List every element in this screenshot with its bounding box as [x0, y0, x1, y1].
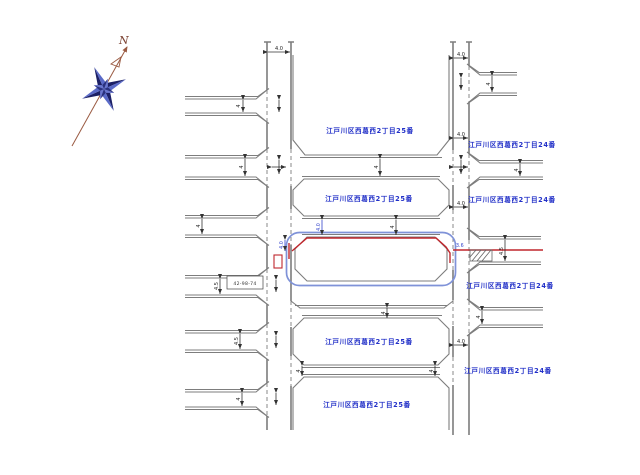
- dimension-label: 4.5: [499, 247, 505, 255]
- crosswalk-hatch-box: [470, 250, 492, 261]
- crossing-symbol: [454, 160, 468, 174]
- block-label-24-4: 江戸川区西葛西2丁目24番: [464, 366, 552, 375]
- dimension-label-blue: 4.0: [316, 223, 322, 231]
- block-label-25-1: 江戸川区西葛西2丁目25番: [326, 126, 414, 135]
- dimension-label: 4.5: [234, 337, 240, 345]
- dimension-label: 4: [381, 311, 387, 314]
- north-needle-line: [72, 47, 127, 146]
- parcel-blue-outline: [287, 233, 456, 286]
- street-annotation-text: 42-98-74: [233, 281, 256, 287]
- dimension-label: 4.0: [275, 46, 283, 52]
- dimension-label: 4: [236, 397, 242, 400]
- block-outline-c1: [293, 55, 449, 155]
- dimension-label: 4: [236, 104, 242, 107]
- compass-star-points: [72, 57, 135, 120]
- block-label-25-2: 江戸川区西葛西2丁目25番: [325, 194, 413, 203]
- dimension-label-blue: 3.6: [456, 243, 464, 249]
- dimension-label: 4: [296, 369, 302, 372]
- north-arrow: N: [72, 34, 136, 146]
- dimension-label: 4.0: [457, 339, 465, 345]
- dimension-label: 4: [514, 168, 520, 171]
- compass-star: [72, 57, 135, 120]
- dimension-label-blue: 4.0: [279, 241, 285, 249]
- map-drawing: N: [0, 0, 640, 475]
- north-arrow-fletch: [111, 57, 121, 67]
- dimension-label: 4.0: [457, 52, 465, 58]
- dimension-label: 4: [239, 165, 245, 168]
- street-annotation-box: 42-98-74: [227, 276, 263, 289]
- dimension-label: 4: [476, 315, 482, 318]
- highlighted-parcel: [274, 233, 543, 286]
- block-labels: 江戸川区西葛西2丁目25番 江戸川区西葛西2丁目25番 江戸川区西葛西2丁目25…: [323, 126, 556, 409]
- parcel-red-marker: [274, 255, 282, 268]
- cad-map-canvas: N: [0, 0, 640, 475]
- dimension-label: 4: [196, 224, 202, 227]
- block-label-25-4: 江戸川区西葛西2丁目25番: [323, 400, 411, 409]
- dimension-label: 4.0: [457, 201, 465, 207]
- dimension-label: 4: [486, 82, 492, 85]
- dimension-label: 4.0: [457, 132, 465, 138]
- block-label-25-3: 江戸川区西葛西2丁目25番: [325, 337, 413, 346]
- block-label-24-3: 江戸川区西葛西2丁目24番: [466, 281, 554, 290]
- north-label: N: [118, 34, 129, 47]
- dimension-label: 4: [374, 165, 380, 168]
- road-west-stubs: [185, 89, 269, 418]
- crossing-symbol: [272, 160, 286, 174]
- dimension-label: 4: [429, 369, 435, 372]
- block-label-24-2: 江戸川区西葛西2丁目24番: [468, 195, 556, 204]
- dimension-label: 4.5: [214, 282, 220, 290]
- dimension-label: 4: [390, 225, 396, 228]
- block-label-24-1: 江戸川区西葛西2丁目24番: [468, 140, 556, 149]
- parcel-gray-outline: [295, 237, 447, 281]
